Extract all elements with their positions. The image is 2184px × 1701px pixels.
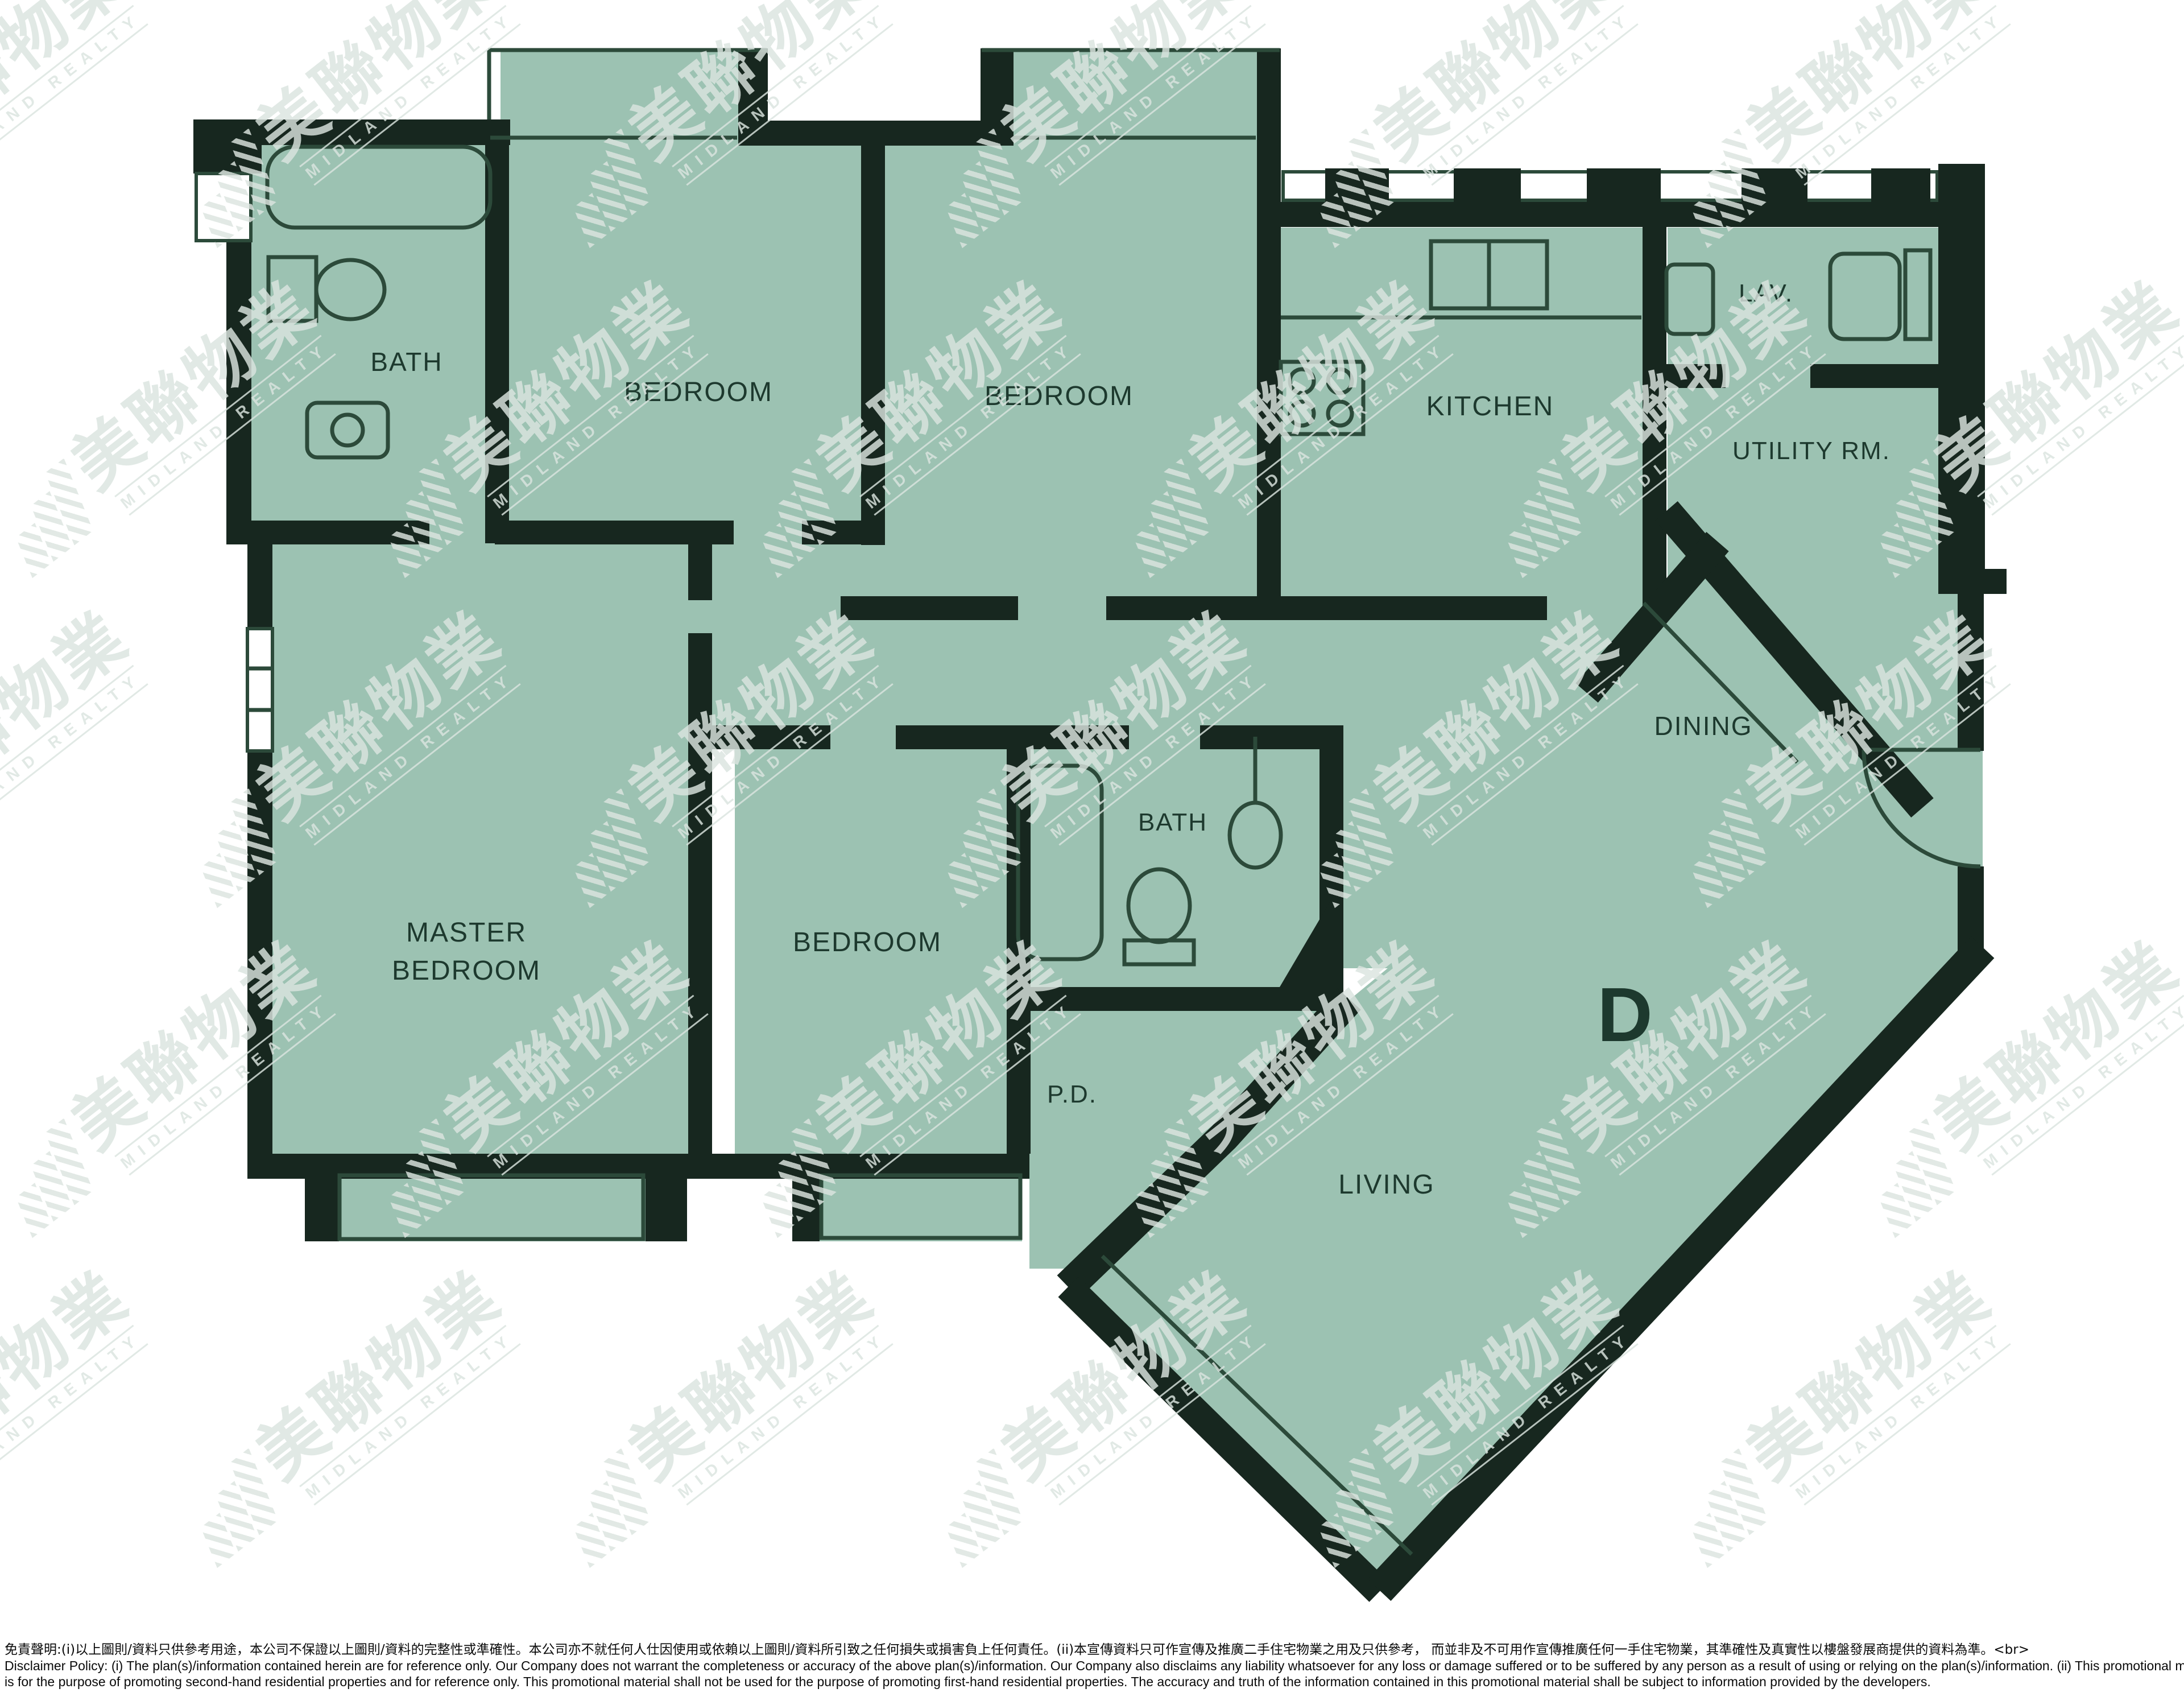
disclaimer-line-zh: 免責聲明:(i)以上圖則/資料只供參考用途，本公司不保證以上圖則/資料的完整性或… (5, 1642, 2182, 1658)
room-label-bedroom2: BEDROOM (985, 381, 1134, 411)
bedroom3-balcony-area (820, 1173, 1022, 1241)
room-area-dining (1281, 621, 1983, 968)
room-label-kitchen: KITCHEN (1426, 391, 1554, 422)
room-label-bath1: BATH (370, 347, 442, 377)
master-balcony-area (338, 1173, 646, 1241)
floor-plan-svg: BATH BEDROOM BEDROOM KITCHEN LAV. UTILIT… (0, 0, 2184, 1701)
floor-plan-page: BATH BEDROOM BEDROOM KITCHEN LAV. UTILIT… (0, 0, 2184, 1701)
room-label-living: LIVING (1338, 1170, 1434, 1200)
room-label-lav: LAV. (1739, 279, 1793, 307)
room-label-bedroom1: BEDROOM (624, 377, 773, 407)
room-label-pd: P.D. (1047, 1080, 1097, 1108)
disclaimer-line-en2: is for the purpose of promoting second-h… (5, 1674, 2182, 1690)
unit-label: D (1597, 972, 1654, 1058)
room-label-master-2: BEDROOM (392, 956, 541, 986)
hallway-area (711, 532, 1281, 749)
disclaimer: 免責聲明:(i)以上圖則/資料只供參考用途，本公司不保證以上圖則/資料的完整性或… (5, 1642, 2182, 1690)
room-area-master-bedroom (249, 540, 712, 1154)
room-label-bath2: BATH (1138, 808, 1207, 836)
disclaimer-line-en1: Disclaimer Policy: (i) The plan(s)/infor… (5, 1658, 2182, 1674)
room-label-dining: DINING (1654, 711, 1753, 741)
room-label-master-1: MASTER (406, 918, 527, 948)
exterior-notch (767, 0, 982, 122)
room-label-utility: UTILITY RM. (1732, 437, 1891, 465)
room-label-bedroom3: BEDROOM (793, 927, 942, 957)
